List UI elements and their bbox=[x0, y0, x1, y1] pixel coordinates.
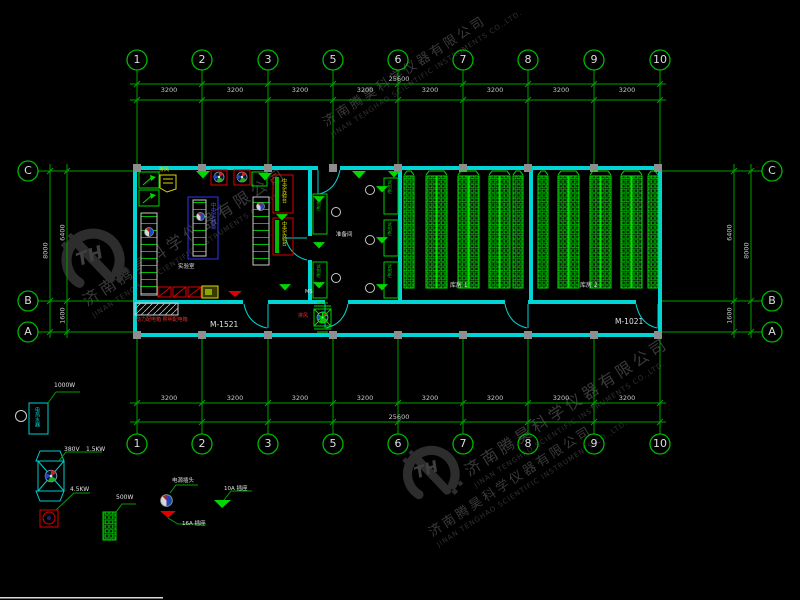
ms-label: MS bbox=[305, 290, 313, 296]
fume-hood-label: 排风 bbox=[159, 168, 169, 174]
grid-bubble-bottom-1: 1 bbox=[127, 438, 147, 450]
cabinet-label: 试剂柜 bbox=[386, 180, 391, 212]
cabinet-label: 试剂柜 bbox=[315, 197, 320, 231]
dim-total-bottom: 25600 bbox=[384, 414, 414, 421]
grid-bubble-top-6: 6 bbox=[388, 54, 408, 66]
legend-exhaust-fan-power: 4.5KW bbox=[70, 487, 89, 494]
legend-plug-label: 电源插头 bbox=[172, 478, 194, 484]
grid-bubble-right-A: A bbox=[762, 326, 782, 338]
cabinet-label: 试剂柜 bbox=[386, 222, 391, 254]
cabinet-label: 试剂柜 bbox=[315, 264, 320, 296]
panel-label: 动力配电箱 照明配电箱 bbox=[136, 318, 188, 324]
legend-socket16-label: 16A 插座 bbox=[182, 521, 206, 527]
dim-span: 3200 bbox=[285, 395, 315, 402]
grid-bubble-right-C: C bbox=[762, 165, 782, 177]
dim-span: 3200 bbox=[285, 87, 315, 94]
grid-bubble-left-C: C bbox=[18, 165, 38, 177]
dim-span: 3200 bbox=[480, 87, 510, 94]
grid-bubble-left-A: A bbox=[18, 326, 38, 338]
grid-bubble-bottom-3: 3 bbox=[258, 438, 278, 450]
dim-span: 3200 bbox=[220, 395, 250, 402]
grid-bubble-top-3: 3 bbox=[258, 54, 278, 66]
cad-drawing-canvas: 济南腾昊科学仪器有限公司 JINAN TENGHAO SCIENTIFIC IN… bbox=[0, 0, 800, 600]
grid-bubble-bottom-10: 10 bbox=[650, 438, 670, 450]
legend-symbols bbox=[16, 392, 253, 540]
room-label-store-1: 库房 1 bbox=[450, 283, 468, 290]
grid-bubble-bottom-9: 9 bbox=[584, 438, 604, 450]
grid-bubble-bottom-7: 7 bbox=[453, 438, 473, 450]
grid-bubble-bottom-6: 6 bbox=[388, 438, 408, 450]
dim-span: 3200 bbox=[415, 87, 445, 94]
grid-bubble-bottom-8: 8 bbox=[518, 438, 538, 450]
bench-label-cabinet-1: 中央实验台 bbox=[281, 178, 286, 210]
dim-span: 3200 bbox=[350, 395, 380, 402]
floor-plan-drawing bbox=[0, 0, 800, 600]
dim-span: 3200 bbox=[612, 87, 642, 94]
door-label-right: M-1021 bbox=[615, 318, 643, 326]
room-label-store-2: 库房 2 bbox=[580, 283, 598, 290]
dim-side-lower-left: 1600 bbox=[59, 301, 66, 331]
legend-socket10-label: 10A 插座 bbox=[224, 486, 248, 492]
dim-span: 3200 bbox=[612, 395, 642, 402]
grid-bubble-left-B: B bbox=[18, 295, 38, 307]
room-label-middle: 准备间 bbox=[336, 232, 353, 238]
grid-bubble-top-2: 2 bbox=[192, 54, 212, 66]
socket-symbols bbox=[196, 171, 400, 291]
dim-side-lower-right: 1600 bbox=[726, 301, 733, 331]
dim-span: 3200 bbox=[546, 87, 576, 94]
door-label-left: M-1521 bbox=[210, 321, 238, 329]
grid-bubble-top-7: 7 bbox=[453, 54, 473, 66]
dim-span: 3200 bbox=[415, 395, 445, 402]
dim-side-total-right: 8000 bbox=[743, 236, 750, 266]
grid-bubble-top-5: 5 bbox=[323, 54, 343, 66]
dim-span: 3200 bbox=[154, 87, 184, 94]
dim-total-top: 25600 bbox=[384, 76, 414, 83]
legend-water-heater-text: 电热水器 bbox=[34, 407, 39, 431]
grid-bubble-top-8: 8 bbox=[518, 54, 538, 66]
legend-fan-power: 1.5KW bbox=[86, 447, 105, 454]
cabinet-label: 试剂柜 bbox=[386, 264, 391, 296]
corridor-fan-label: 排风 bbox=[298, 314, 308, 320]
dim-side-upper-left: 6400 bbox=[59, 218, 66, 248]
grid-bubble-bottom-5: 5 bbox=[323, 438, 343, 450]
bench-label-center: 中央实验台 bbox=[209, 202, 215, 256]
room-label-lab: 实验室 bbox=[178, 264, 195, 270]
bench-label-cabinet-2: 中央实验台 bbox=[281, 221, 286, 253]
dim-side-total-left: 8000 bbox=[42, 236, 49, 266]
dim-span: 3200 bbox=[350, 87, 380, 94]
sheet-edge-line bbox=[0, 597, 163, 599]
grid-bubble-top-9: 9 bbox=[584, 54, 604, 66]
legend-water-heater-power: 1000W bbox=[54, 383, 75, 390]
grid-bubble-right-B: B bbox=[762, 295, 782, 307]
dim-side-upper-right: 6400 bbox=[726, 218, 733, 248]
grid-bubble-top-10: 10 bbox=[650, 54, 670, 66]
dim-span: 3200 bbox=[546, 395, 576, 402]
dim-span: 3200 bbox=[220, 87, 250, 94]
grid-bubble-bottom-2: 2 bbox=[192, 438, 212, 450]
grid-bubble-top-1: 1 bbox=[127, 54, 147, 66]
dim-span: 3200 bbox=[480, 395, 510, 402]
legend-fan-voltage: 380V bbox=[64, 447, 80, 454]
legend-rack-power: 500W bbox=[116, 495, 133, 502]
dim-span: 3200 bbox=[154, 395, 184, 402]
